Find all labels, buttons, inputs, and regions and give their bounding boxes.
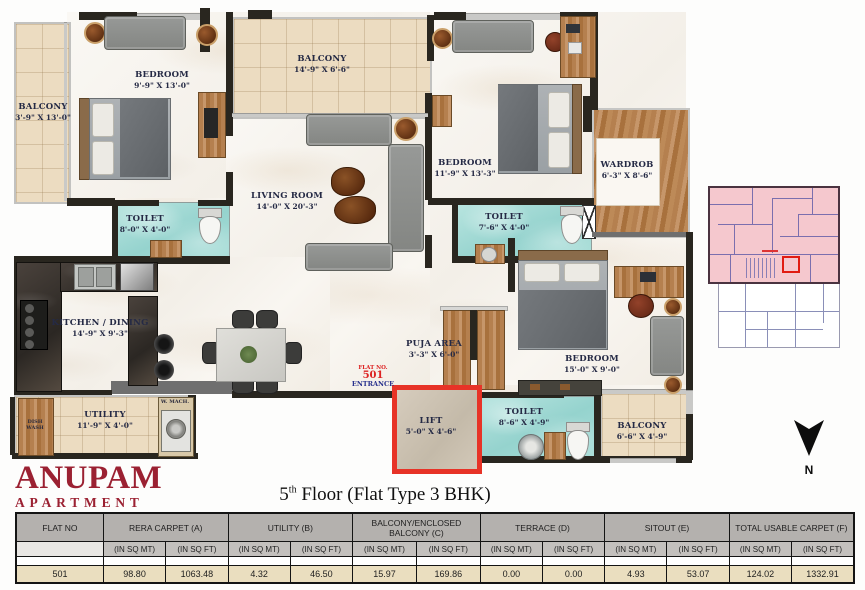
unit-cell: (IN SQ MT) xyxy=(729,542,791,557)
furniture-tv xyxy=(204,108,218,138)
shower-head xyxy=(518,434,544,460)
data-cell: 15.97 xyxy=(353,566,417,584)
furniture-sofa xyxy=(104,16,186,50)
room-label-utility: UTILITY11'-9" X 4'-0" xyxy=(77,410,133,430)
wall xyxy=(226,12,233,136)
header-total-carpet: TOTAL USABLE CARPET (F) xyxy=(729,513,854,542)
room-label-toilet-1: TOILET8'-0" X 4'-0" xyxy=(120,214,171,234)
furniture-bed-headboard xyxy=(572,84,582,174)
table-plant xyxy=(240,346,257,363)
unit-cell: (IN SQ FT) xyxy=(166,542,228,557)
window-wall xyxy=(610,458,676,463)
data-cell: 1063.48 xyxy=(166,566,228,584)
data-cell: 46.50 xyxy=(290,566,352,584)
wall xyxy=(508,238,515,292)
room-label-balcony-left: BALCONY3'-9" X 13'-0" xyxy=(15,102,71,122)
kitchen-sink-bowl xyxy=(96,267,112,287)
kitchen-appliance xyxy=(120,263,154,291)
wall xyxy=(686,232,693,390)
dining-chair xyxy=(232,310,254,329)
bar-stool xyxy=(154,360,174,380)
room-label-toilet-3: TOILET8'-6" X 4'-9" xyxy=(499,407,550,427)
furniture-sofa xyxy=(306,114,392,146)
furniture-side-table xyxy=(432,28,453,49)
entrance-label: FLAT NO. 501 ENTRANCE xyxy=(348,365,398,388)
header-rera-carpet: RERA CARPET (A) xyxy=(103,513,228,542)
wall xyxy=(594,392,601,458)
area-table: FLAT NO RERA CARPET (A) UTILITY (B) BALC… xyxy=(15,512,855,584)
data-cell-flat-no: 501 xyxy=(16,566,103,584)
table-header-row: FLAT NO RERA CARPET (A) UTILITY (B) BALC… xyxy=(16,513,854,542)
furniture-desk-items xyxy=(568,42,582,54)
key-plan-stairs xyxy=(746,258,777,278)
data-cell: 4.93 xyxy=(605,566,667,584)
wall xyxy=(428,198,594,205)
room-label-bedroom-2: BEDROOM11'-9" X 13'-3" xyxy=(435,158,496,178)
unit-cell xyxy=(16,542,103,557)
window-wall xyxy=(686,390,693,415)
stove-burner xyxy=(25,328,34,337)
furniture-pillow xyxy=(548,92,570,128)
unit-cell: (IN SQ FT) xyxy=(792,542,854,557)
furniture-desk xyxy=(614,266,684,298)
room-label-wardrobe: WARDROB6'-3" X 8'-6" xyxy=(600,160,653,180)
floor-title: 5th Floor (Flat Type 3 BHK) xyxy=(255,484,515,506)
window-wall xyxy=(466,13,562,20)
furniture-side-table xyxy=(196,24,218,46)
furniture-desk-items xyxy=(566,24,580,33)
unit-cell: (IN SQ FT) xyxy=(667,542,729,557)
table-unit-row: (IN SQ MT) (IN SQ FT) (IN SQ MT) (IN SQ … xyxy=(16,542,854,557)
dining-chair xyxy=(284,342,302,364)
dish-wash-label: DISH WASH xyxy=(19,419,51,431)
washing-machine-label: W. MACH. xyxy=(158,399,192,405)
room-label-kitchen-dining: KITCHEN / DINING14'-9" X 9'-3" xyxy=(51,318,148,338)
stove-burner xyxy=(25,304,34,313)
furniture-side-table xyxy=(664,376,682,394)
furniture-side-table xyxy=(664,298,682,316)
furniture-desk xyxy=(432,95,452,127)
furniture-blanket xyxy=(498,85,538,171)
unit-cell: (IN SQ FT) xyxy=(290,542,352,557)
furniture-chair xyxy=(628,294,654,318)
room-label-bedroom-3: BEDROOM15'-0" X 9'-0" xyxy=(564,354,620,374)
wall xyxy=(425,93,432,200)
stove-burner xyxy=(25,316,34,325)
table-empty-row xyxy=(16,557,854,566)
data-cell: 124.02 xyxy=(729,566,791,584)
wall-gray xyxy=(592,232,686,237)
furniture-blanket xyxy=(518,290,606,348)
unit-cell: (IN SQ MT) xyxy=(353,542,417,557)
wall xyxy=(434,12,466,20)
furniture-console-knob xyxy=(530,384,540,390)
data-cell: 4.32 xyxy=(228,566,290,584)
wall xyxy=(232,391,392,398)
header-utility: UTILITY (B) xyxy=(228,513,353,542)
room-label-puja-area: PUJA AREA3'-3" X 6'-0" xyxy=(406,339,462,359)
furniture-pillow xyxy=(524,263,560,282)
unit-cell: (IN SQ MT) xyxy=(480,542,542,557)
unit-cell: (IN SQ MT) xyxy=(228,542,290,557)
furniture-side-table xyxy=(84,22,106,44)
furniture-sofa xyxy=(650,316,684,376)
room-label-bedroom-1: BEDROOM9'-9" X 13'-0" xyxy=(134,70,190,90)
furniture-sofa xyxy=(388,144,424,252)
wall xyxy=(198,200,230,206)
furniture-pillow xyxy=(548,132,570,168)
header-terrace: TERRACE (D) xyxy=(480,513,604,542)
room-label-living-room: LIVING ROOM14'-0" X 20'-3" xyxy=(251,191,323,211)
unit-cell: (IN SQ FT) xyxy=(542,542,604,557)
wall xyxy=(112,202,118,260)
dining-chair xyxy=(256,310,278,329)
bar-stool xyxy=(154,334,174,354)
furniture-sofa xyxy=(305,243,393,271)
furniture-sofa xyxy=(452,20,534,53)
wall xyxy=(452,198,458,260)
compass-north-indicator: N xyxy=(786,420,832,477)
header-sitout: SITOUT (E) xyxy=(605,513,730,542)
kitchen-sink-bowl xyxy=(78,267,94,287)
brand-name: ANUPAM xyxy=(15,462,162,494)
wall xyxy=(248,10,272,19)
furniture-blanket xyxy=(120,99,168,177)
data-cell: 53.07 xyxy=(667,566,729,584)
furniture-side-table xyxy=(394,117,418,141)
toilet-vanity xyxy=(150,240,182,258)
puja-panel xyxy=(477,310,505,390)
header-balcony: BALCONY/ENCLOSED BALCONY (C) xyxy=(353,513,481,542)
north-label: N xyxy=(786,463,832,477)
wall xyxy=(425,235,432,268)
washing-machine-door xyxy=(166,419,186,439)
key-plan xyxy=(708,186,840,284)
data-cell: 0.00 xyxy=(480,566,542,584)
stove-burner xyxy=(25,340,34,349)
brand-subtitle: APARTMENT xyxy=(15,495,162,511)
toilet-sink xyxy=(481,247,497,262)
wall xyxy=(67,198,115,206)
header-flat-no: FLAT NO xyxy=(16,513,103,542)
furniture-coffee-table xyxy=(334,196,376,224)
wall xyxy=(10,397,15,455)
furniture-console-knob xyxy=(560,384,570,390)
unit-cell: (IN SQ FT) xyxy=(416,542,480,557)
key-plan-lower xyxy=(718,282,840,348)
wall xyxy=(470,310,477,360)
brand-logo: ANUPAM APARTMENT xyxy=(15,462,162,511)
room-label-toilet-2: TOILET7'-6" X 4'-0" xyxy=(479,212,530,232)
room-label-balcony-top: BALCONY14'-9" X 6'-6" xyxy=(294,54,350,74)
room-label-balcony-3: BALCONY6'-6" X 4'-9" xyxy=(617,421,668,441)
wall xyxy=(583,96,592,132)
data-cell: 0.00 xyxy=(542,566,604,584)
furniture-laptop xyxy=(640,272,656,282)
unit-cell: (IN SQ MT) xyxy=(605,542,667,557)
toilet-vanity xyxy=(544,432,566,460)
data-cell: 169.86 xyxy=(416,566,480,584)
furniture-pillow xyxy=(564,263,600,282)
wall xyxy=(686,414,693,460)
furniture-pillow xyxy=(92,141,114,175)
wall xyxy=(113,200,159,206)
north-arrow-icon xyxy=(794,420,824,458)
room-label-lift: LIFT5'-0" X 4'-6" xyxy=(406,416,457,436)
table-data-row: 501 98.80 1063.48 4.32 46.50 15.97 169.8… xyxy=(16,566,854,584)
furniture-pillow xyxy=(92,103,114,137)
key-plan-lift-marker xyxy=(782,256,800,273)
unit-cell: (IN SQ MT) xyxy=(103,542,165,557)
data-cell: 98.80 xyxy=(103,566,165,584)
data-cell: 1332.91 xyxy=(792,566,854,584)
